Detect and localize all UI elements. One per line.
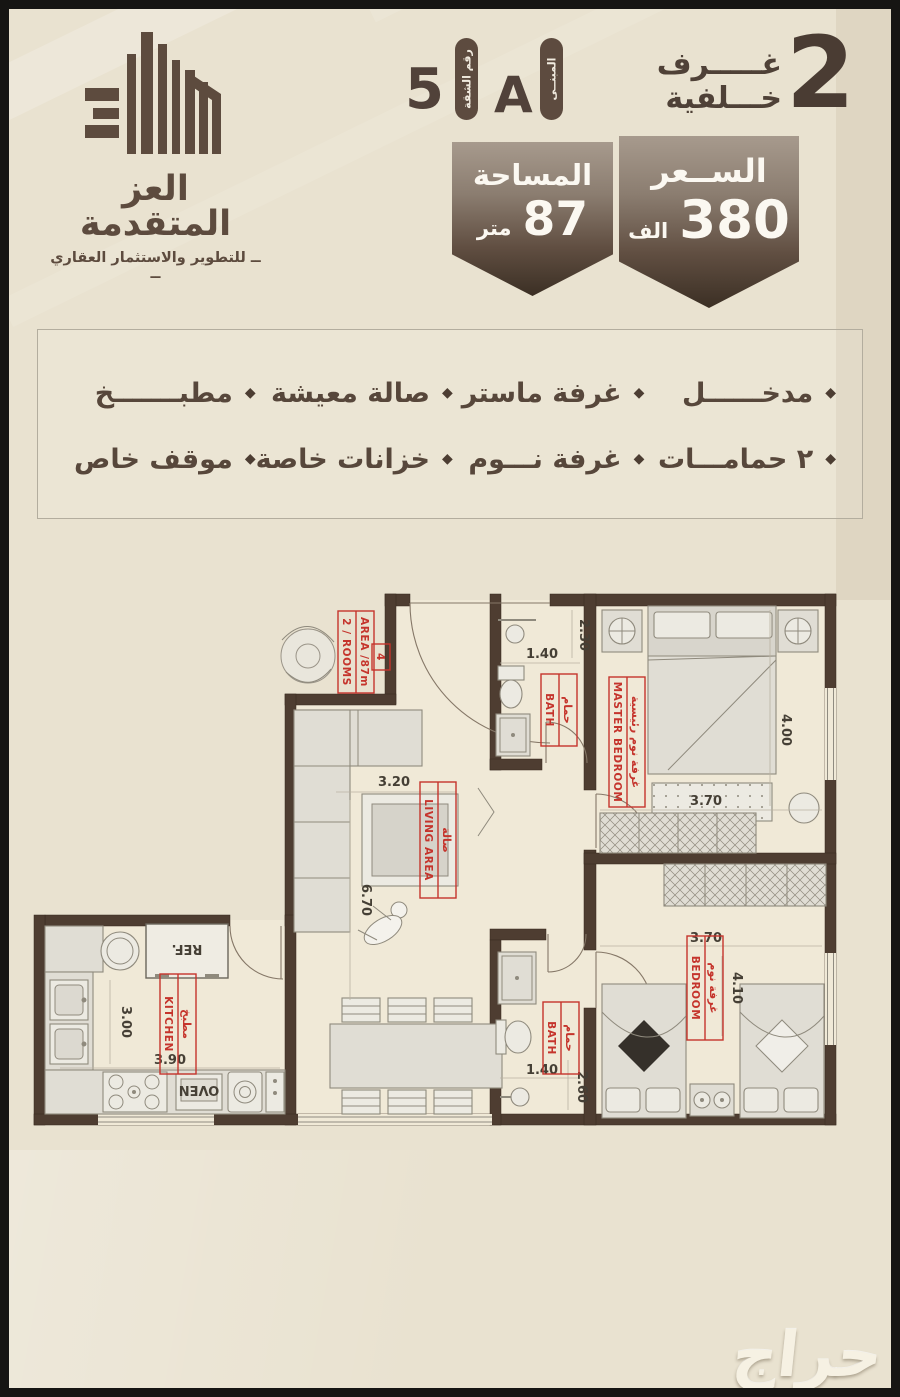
- price-badge-title: الســعر: [619, 152, 799, 190]
- dim-bath-bottom-width: 1.40: [526, 1063, 558, 1078]
- dim-bath-bottom-height: 2.60: [574, 1071, 589, 1103]
- bedroom-bed-right: [740, 984, 824, 1118]
- feature-item: ◆صالة معيشة: [256, 378, 453, 409]
- fridge-label: REF.: [172, 941, 203, 956]
- washing-machine: [228, 1072, 284, 1112]
- rooms-type: خـــلفية: [610, 82, 782, 116]
- diamond-bullet-icon: ◆: [245, 386, 256, 400]
- room-label-ar: غرفة نوم: [707, 962, 720, 1013]
- feature-item: ◆غرفة ماستر: [453, 378, 645, 409]
- feature-item: ◆غرفة نـــوم: [453, 444, 645, 475]
- unit-rooms-text: 2 / ROOMS: [340, 618, 352, 686]
- stove: [103, 1072, 167, 1112]
- oven-label: OVEN: [179, 1082, 220, 1097]
- price-value: 380: [679, 190, 790, 251]
- diamond-bullet-icon: ◆: [634, 386, 645, 400]
- unit-area-tag: AREA /87m 2 / ROOMS: [338, 611, 374, 693]
- company-logo-skyline-icon: [81, 26, 231, 168]
- building-letter: A: [494, 70, 533, 120]
- apartment-number: 5: [405, 62, 444, 118]
- rooms-word: غـــــرف: [610, 48, 782, 82]
- dim-kitchen-width: 3.90: [154, 1053, 186, 1068]
- company-name: العز المتقدمة: [48, 172, 263, 242]
- oven: OVEN: [176, 1074, 222, 1110]
- entrance-plant: [281, 626, 335, 683]
- feature-label: غرفة ماستر: [462, 378, 622, 409]
- feature-item: ◆٢ حمامـــات: [644, 444, 836, 475]
- fridge: REF.: [146, 924, 228, 978]
- diamond-bullet-icon: ◆: [442, 386, 453, 400]
- dim-living-height: 6.70: [358, 884, 373, 916]
- master-bed: [648, 606, 776, 774]
- unit-area-text: AREA /87m: [358, 617, 370, 687]
- diamond-bullet-icon: ◆: [825, 386, 836, 400]
- room-label-en: LIVING AREA: [422, 799, 434, 881]
- room-label-ar: صالة: [440, 827, 453, 853]
- feature-item: ◆مدخــــــل: [644, 378, 836, 409]
- dim-master-height: 4.00: [778, 714, 793, 746]
- feature-item: ◆مطبـــــــخ: [64, 378, 256, 409]
- room-label-en: BATH: [545, 1021, 557, 1055]
- rooms-count: 2: [786, 24, 855, 123]
- room-label-en: BATH: [543, 693, 555, 727]
- feature-label: صالة معيشة: [271, 378, 430, 409]
- floor-plan: REF. OVEN: [0, 560, 900, 1140]
- rooms-headline: غـــــرف خـــلفية: [610, 48, 782, 116]
- dim-master-width: 3.70: [690, 794, 722, 809]
- feature-label: غرفة نـــوم: [468, 444, 621, 475]
- room-label-en: BEDROOM: [689, 956, 701, 1020]
- room-label-master: غرفة نوم رئيسية MASTER BEDROOM: [609, 677, 645, 807]
- diamond-bullet-icon: ◆: [245, 452, 256, 466]
- area-badge-title: المساحة: [452, 158, 613, 192]
- features-box: ◆مدخــــــل ◆غرفة ماستر ◆صالة معيشة ◆مطب…: [37, 329, 863, 519]
- room-label-en: MASTER BEDROOM: [611, 682, 623, 803]
- company-tagline: ــ للتطوير والاستثمار العقاري ــ: [48, 250, 263, 282]
- company-logo: العز المتقدمة ــ للتطوير والاستثمار العق…: [48, 26, 263, 282]
- diamond-bullet-icon: ◆: [442, 452, 453, 466]
- area-value: 87: [523, 192, 588, 247]
- haraj-watermark: حراج: [729, 1318, 886, 1391]
- bedroom-wardrobe: [664, 864, 826, 906]
- room-label-ar: حمام: [561, 696, 574, 724]
- bedroom-nightstand: [690, 1084, 734, 1116]
- dim-kitchen-height: 3.00: [118, 1006, 133, 1038]
- background-bottom-glow: [0, 1150, 720, 1397]
- dim-bedroom-width: 3.70: [690, 931, 722, 946]
- room-label-en: KITCHEN: [162, 996, 174, 1052]
- price-unit: الف: [628, 219, 668, 243]
- building-label: المبنــى: [545, 58, 558, 101]
- feature-item: ◆خزانات خاصة: [256, 444, 453, 475]
- apartment-number-label: رقم الشقة: [460, 49, 473, 109]
- feature-label: مدخــــــل: [682, 378, 813, 409]
- master-stool: [789, 793, 819, 823]
- room-label-ar: مطبخ: [180, 1009, 193, 1039]
- feature-label: ٢ حمامـــات: [658, 444, 813, 475]
- building-pill: المبنــى: [540, 38, 563, 120]
- area-badge: المساحة 87 متر: [452, 142, 613, 296]
- feature-label: مطبـــــــخ: [95, 378, 233, 409]
- feature-label: خزانات خاصة: [256, 444, 430, 475]
- unit-number-text: 4: [374, 653, 386, 661]
- master-wardrobe: [600, 813, 756, 853]
- bedroom-bed-left: [602, 984, 686, 1118]
- feature-item: ◆موقف خاص: [64, 444, 256, 475]
- area-unit: متر: [477, 216, 512, 240]
- room-label-ar: غرفة نوم رئيسية: [629, 696, 642, 788]
- dim-bath-top-width: 1.40: [526, 647, 558, 662]
- dim-bath-top-height: 2.30: [576, 619, 591, 651]
- flyer-page: العز المتقدمة ــ للتطوير والاستثمار العق…: [0, 0, 900, 1397]
- feature-label: موقف خاص: [74, 444, 233, 475]
- dim-living-width: 3.20: [378, 775, 410, 790]
- price-badge: الســعر 380 الف: [619, 136, 799, 308]
- dim-bedroom-height: 4.10: [729, 972, 744, 1004]
- apartment-number-pill: رقم الشقة: [455, 38, 478, 120]
- diamond-bullet-icon: ◆: [825, 452, 836, 466]
- room-label-ar: حمام: [563, 1024, 576, 1052]
- diamond-bullet-icon: ◆: [634, 452, 645, 466]
